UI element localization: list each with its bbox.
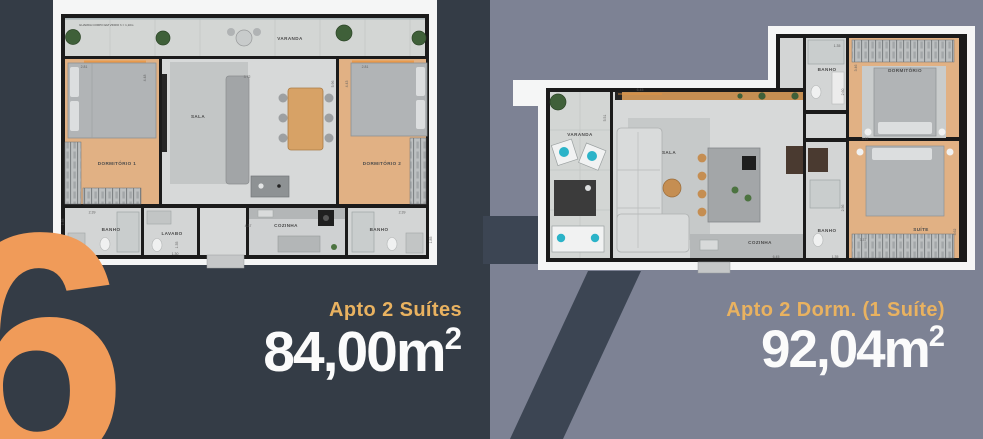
dim-label: 2.81: [362, 65, 369, 69]
bench-icon: [552, 226, 604, 252]
wardrobe-icon: [410, 138, 426, 204]
dim-label: 2.39: [399, 211, 406, 215]
brochure-page: VARANDA SALA COZINHA BANHO DORMITÓRIO BA…: [0, 0, 983, 439]
bed-icon: [852, 40, 954, 138]
room-label-banho-inf: BANHO: [818, 228, 837, 233]
sideboard-icon: [615, 92, 803, 100]
hall-floor: [780, 38, 803, 88]
tv-panel-icon: [162, 74, 167, 152]
room-label-varanda: VARANDA: [277, 36, 303, 41]
plant-icon: [156, 31, 170, 45]
left-caption-area: 84,00m2: [142, 325, 462, 379]
kitchen-island-icon: [251, 176, 289, 197]
dim-label: 4.37: [245, 224, 252, 228]
dim-label: 3.37: [860, 238, 867, 242]
numeral-6: 6: [0, 184, 128, 439]
numeral-7-diagonal: [510, 271, 641, 439]
plant-icon: [336, 25, 352, 41]
dim-label: 1.35: [834, 44, 841, 48]
dim-label: 2.60: [841, 89, 845, 96]
room-label-banho-sup: BANHO: [818, 67, 837, 72]
hall-floor: [200, 208, 246, 255]
dim-label: 1.30: [172, 252, 179, 256]
right-area-superscript: 2: [929, 321, 945, 353]
dim-label: 6.45: [637, 88, 644, 92]
dim-label: 1.35: [175, 242, 179, 249]
dim-label: 4.43: [345, 81, 349, 88]
right-caption-title: Apto 2 Dorm. (1 Suíte): [625, 299, 945, 322]
dim-label: 3.37: [862, 137, 869, 141]
dim-label: 4.48: [143, 75, 147, 82]
right-caption-area: 92,04m2: [625, 325, 945, 375]
room-label-banho-dir: BANHO: [370, 227, 389, 232]
left-caption-title: Apto 2 Suítes: [142, 299, 462, 322]
dim-label: 2.56: [841, 205, 845, 212]
left-area-value: 84,00m: [263, 320, 444, 384]
hall2-floor: [806, 114, 846, 138]
bed-icon: [351, 63, 427, 136]
room-label-sala: SALA: [662, 150, 676, 155]
left-caption: Apto 2 Suítes 84,00m2: [142, 299, 462, 379]
floorplan-right: VARANDA SALA COZINHA BANHO DORMITÓRIO BA…: [513, 26, 975, 273]
plant-icon: [550, 94, 566, 110]
dim-label: 1.35: [832, 255, 839, 259]
sofa-icon: [226, 76, 249, 184]
dim-label: 1.85: [429, 237, 433, 244]
glass-rail: [65, 18, 425, 20]
entry-mat: [207, 255, 244, 268]
room-label-cozinha: COZINHA: [748, 240, 772, 245]
desk-icon: [554, 180, 596, 216]
plant-icon: [66, 30, 81, 45]
room-label-suite: SUÍTE: [913, 225, 929, 232]
left-area-superscript: 2: [445, 321, 462, 356]
plant-icon: [412, 31, 426, 45]
bed-icon: [852, 146, 954, 258]
room-label-dormitorio2: DORMITÓRIO 2: [363, 159, 402, 166]
right-area-value: 92,04m: [761, 320, 929, 379]
dim-label: 2.81: [81, 65, 88, 69]
numeral-7-bar: [483, 216, 538, 264]
entry-mat: [698, 262, 730, 273]
glass-rail-note: GUARDA CORPO EM VIDRO h = 1,10m: [79, 23, 134, 27]
room-label-varanda: VARANDA: [567, 132, 593, 137]
dim-label: 3.46: [854, 65, 858, 72]
bed-icon: [68, 63, 156, 138]
right-caption: Apto 2 Dorm. (1 Suíte) 92,04m2: [625, 299, 945, 375]
room-label-cozinha: COZINHA: [274, 223, 298, 228]
dim-label: 6.45: [773, 255, 780, 259]
dim-label: 3.72: [244, 75, 251, 79]
room-label-lavabo: LAVABO: [161, 231, 182, 236]
dim-label: 3.62: [953, 229, 957, 236]
dim-label: 5.51: [603, 115, 607, 122]
dim-label: 5.96: [331, 81, 335, 88]
coffee-table-icon: [663, 179, 681, 197]
room-label-dormitorio: DORMITÓRIO: [888, 66, 922, 73]
room-label-sala: SALA: [191, 114, 205, 119]
